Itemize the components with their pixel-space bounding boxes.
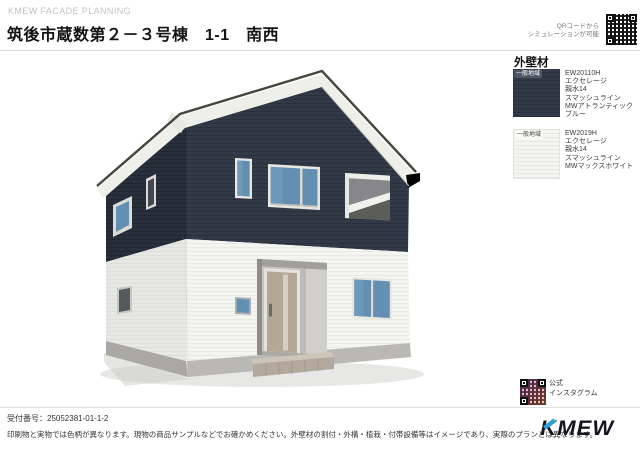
receipt-number: 受付番号：25052381-01-1-2: [7, 413, 108, 424]
balcony-opening: [345, 173, 390, 221]
facade-planning-sheet: KMEW FACADE PLANNING 筑後市蔵数第２－３号棟 1-1 南西 …: [0, 0, 640, 452]
material-color-name: MWマックスホワイト: [565, 163, 638, 171]
downstairs-small-window: [235, 297, 251, 315]
west-window-slit: [146, 174, 156, 210]
kmew-logo: KMEW: [542, 417, 632, 443]
footer-divider: [0, 407, 640, 408]
material-grade: 親水14: [565, 86, 638, 94]
entrance-alcove: [257, 259, 327, 359]
west-lower-window: [117, 286, 132, 314]
material-pattern: スマッシュライン: [565, 95, 638, 103]
upstairs-wide-window: [268, 164, 320, 210]
materials-heading: 外壁材: [514, 54, 549, 70]
material-grade: 親水14: [565, 146, 638, 154]
material-spec-navy: EW20110H エクセレージ 親水14 スマッシュライン MWアトランティック…: [565, 70, 638, 119]
material-code: EW20110H: [565, 70, 638, 78]
instagram-caption: 公式 インスタグラム: [549, 379, 598, 399]
material-swatch-white: 一般地域: [513, 129, 560, 179]
qr-finder-icon: [520, 379, 528, 387]
west-wall: [106, 126, 188, 377]
entrance-door: [264, 268, 300, 356]
region-label: 一般地域: [514, 70, 542, 78]
downstairs-wide-window: [352, 277, 392, 320]
material-spec-white: EW2019H エクセレージ 親水14 スマッシュライン MWマックスホワイト: [565, 130, 638, 171]
material-color-name: MWアトランティックブルー: [565, 103, 638, 119]
region-label: 一般地域: [515, 131, 543, 139]
instagram-caption-line1: 公式: [549, 379, 598, 389]
qr-finder-icon: [520, 397, 528, 405]
disclaimer-text: 印刷物と実物では色柄が異なります。現物の商品サンプルなどでお確かめください。外壁…: [7, 429, 597, 440]
upstairs-narrow-window: [235, 158, 252, 199]
qr-finder-icon: [538, 379, 546, 387]
material-code: EW2019H: [565, 130, 638, 138]
instagram-qr-code: [518, 377, 548, 407]
instagram-caption-line2: インスタグラム: [549, 389, 598, 399]
material-pattern: スマッシュライン: [565, 155, 638, 163]
material-swatch-navy: 一般地域: [513, 69, 560, 117]
